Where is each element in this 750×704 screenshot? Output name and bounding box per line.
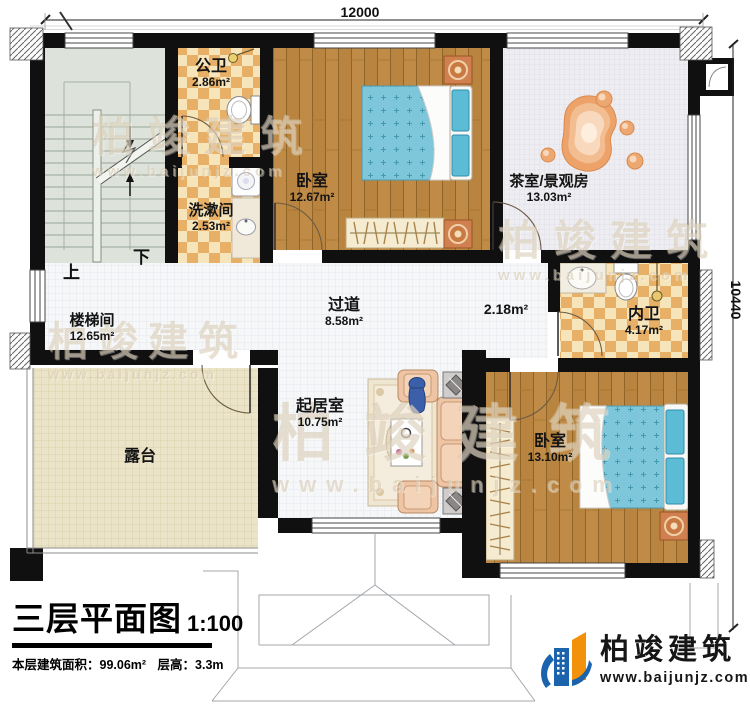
title-block: 三层平面图 1:100 本层建筑面积：99.06m² 层高：3.3m: [12, 592, 243, 673]
room-label-washroom: 洗漱间 2.53m²: [188, 203, 233, 233]
dimension-width: 12000: [330, 4, 390, 20]
washroom-sink-icon: [232, 198, 260, 258]
room-area: 12.65m²: [69, 330, 114, 343]
drawing-scale: 1:100: [187, 611, 243, 640]
nightstand-icon: [660, 512, 688, 540]
room-area: 4.17m²: [625, 324, 663, 337]
title-stats: 本层建筑面积：99.06m² 层高：3.3m: [12, 654, 243, 673]
bed-icon: [580, 404, 688, 510]
window: [507, 33, 628, 48]
window: [312, 518, 440, 533]
room-label-public-bath: 公卫 2.86m²: [192, 58, 230, 89]
bed-icon: [362, 86, 472, 180]
floor-plan-page: 柏竣建筑 www.baijunjz.com 柏竣建筑 www.baijunjz.…: [0, 0, 750, 704]
brand-footer: 柏竣建筑 www.baijunjz.com: [536, 630, 749, 692]
room-name: 卧室: [528, 433, 573, 451]
window: [688, 115, 700, 240]
room-name: 楼梯间: [69, 313, 114, 330]
room-area: 2.53m²: [188, 220, 233, 233]
eave-lines: [30, 26, 703, 30]
room-label-bedroom-top: 卧室 12.67m²: [290, 173, 335, 204]
page-title: 三层平面图: [12, 592, 182, 640]
room-label-bedroom-bottom: 卧室 13.10m²: [528, 433, 573, 464]
room-name: 公卫: [192, 58, 230, 76]
room-label-closet-nook: 2.18m²: [484, 302, 528, 318]
room-name: 内卫: [625, 306, 663, 324]
room-name: 起居室: [296, 398, 344, 416]
toilet-icon: [614, 263, 638, 300]
ensuite-sink-icon: [560, 263, 606, 293]
dimension-height: 10440: [728, 270, 744, 330]
coffee-table-icon: [391, 419, 422, 466]
room-name: 露台: [124, 448, 156, 466]
person-icon: [409, 378, 425, 414]
room-label-tea-room: 茶室/景观房 13.03m²: [509, 174, 588, 204]
brand-url: www.baijunjz.com: [600, 670, 749, 686]
window: [500, 563, 625, 578]
nightstand-icon: [444, 56, 472, 84]
room-name: 洗漱间: [188, 203, 233, 220]
flue-bay: [700, 58, 734, 96]
room-label-living-room: 起居室 10.75m²: [296, 398, 344, 429]
window: [314, 33, 435, 48]
floor-area-stat: 本层建筑面积：99.06m²: [12, 658, 146, 672]
room-area: 2.86m²: [192, 76, 230, 89]
brand-logo-icon: [536, 630, 592, 692]
room-label-stairwell: 楼梯间 12.65m²: [69, 313, 114, 343]
stair-down-label: 下: [133, 243, 150, 268]
title-underline: [12, 643, 212, 648]
room-name: 过道: [325, 297, 363, 315]
room-area: 13.03m²: [509, 191, 588, 204]
room-label-ensuite-bath: 内卫 4.17m²: [625, 306, 663, 337]
room-area: 13.10m²: [528, 451, 573, 464]
room-area: 2.18m²: [484, 302, 528, 318]
room-name: 卧室: [290, 173, 335, 191]
nightstand-icon: [444, 220, 472, 248]
room-name: 茶室/景观房: [509, 174, 588, 191]
room-area: 10.75m²: [296, 416, 344, 429]
stair-up-label: 上: [63, 258, 80, 283]
window: [30, 270, 45, 322]
wardrobe-icon: [486, 418, 514, 560]
washing-machine-icon: [232, 166, 260, 196]
floor-height-stat: 层高：3.3m: [158, 658, 224, 672]
stairwell-floor: [45, 48, 165, 265]
window: [65, 33, 133, 48]
toilet-icon: [227, 96, 260, 124]
room-label-corridor: 过道 8.58m²: [325, 297, 363, 328]
room-label-terrace: 露台: [124, 448, 156, 466]
brand-name: 柏竣建筑: [600, 636, 749, 665]
room-area: 12.67m²: [290, 191, 335, 204]
room-area: 8.58m²: [325, 315, 363, 328]
wardrobe-icon: [346, 218, 444, 248]
